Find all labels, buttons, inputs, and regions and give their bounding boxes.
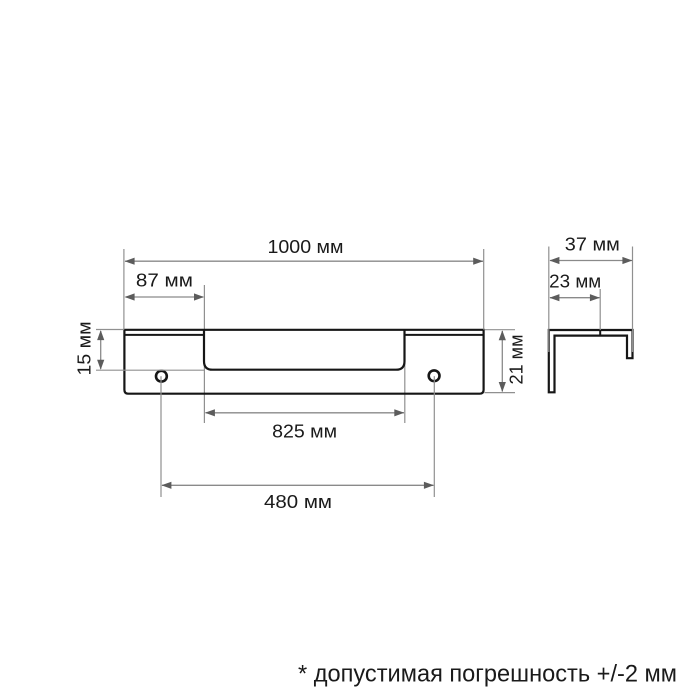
svg-text:1000 мм: 1000 мм [268,237,344,257]
svg-text:15 мм: 15 мм [75,322,95,376]
svg-text:37 мм: 37 мм [565,234,620,254]
svg-text:21 мм: 21 мм [506,335,526,385]
svg-text:23 мм: 23 мм [549,272,601,292]
svg-text:* допустимая погрешность +/-2: * допустимая погрешность +/-2 мм [298,661,677,688]
svg-text:825 мм: 825 мм [272,422,337,442]
svg-text:87 мм: 87 мм [136,271,193,291]
svg-text:480 мм: 480 мм [264,492,332,512]
